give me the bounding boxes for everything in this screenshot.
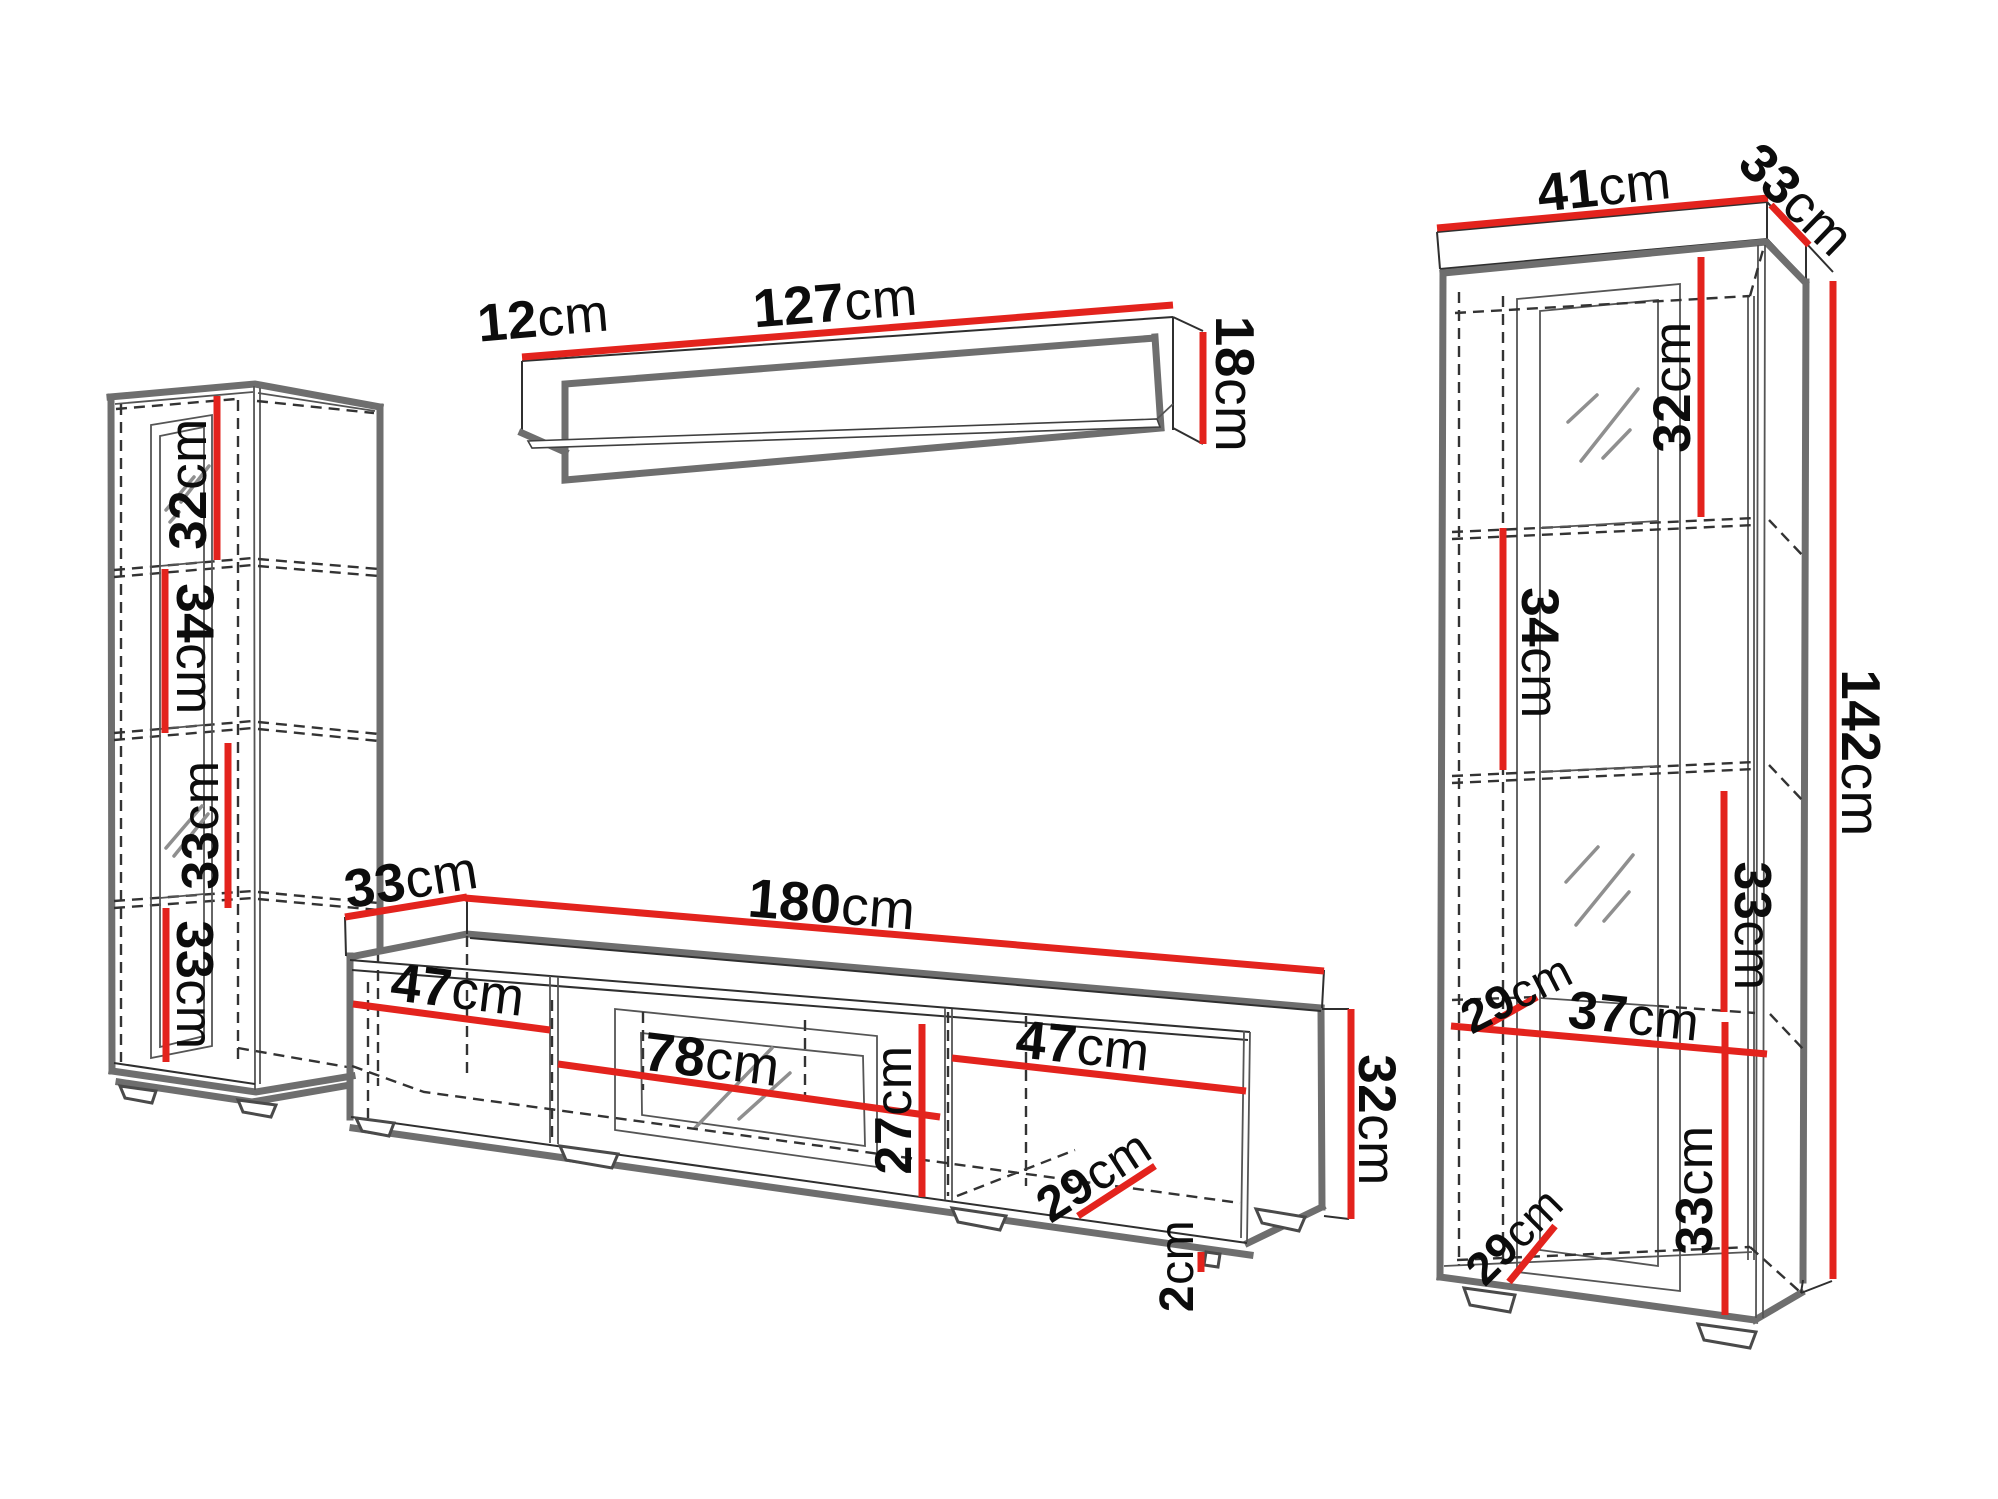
svg-text:32cm: 32cm: [159, 418, 218, 550]
svg-text:142cm: 142cm: [1830, 669, 1892, 837]
svg-text:27cm: 27cm: [865, 1045, 923, 1174]
svg-text:180cm: 180cm: [746, 867, 918, 942]
svg-text:34cm: 34cm: [165, 583, 224, 715]
svg-text:32cm: 32cm: [1643, 321, 1702, 453]
svg-text:18cm: 18cm: [1204, 316, 1266, 453]
svg-text:33cm: 33cm: [165, 920, 223, 1049]
svg-text:33cm: 33cm: [172, 760, 230, 889]
svg-text:12cm: 12cm: [475, 283, 611, 353]
svg-text:33cm: 33cm: [1723, 861, 1781, 990]
svg-text:34cm: 34cm: [1510, 587, 1569, 719]
svg-text:33cm: 33cm: [1666, 1125, 1724, 1254]
svg-text:2cm: 2cm: [1151, 1220, 1204, 1312]
svg-text:32cm: 32cm: [1347, 1054, 1406, 1186]
